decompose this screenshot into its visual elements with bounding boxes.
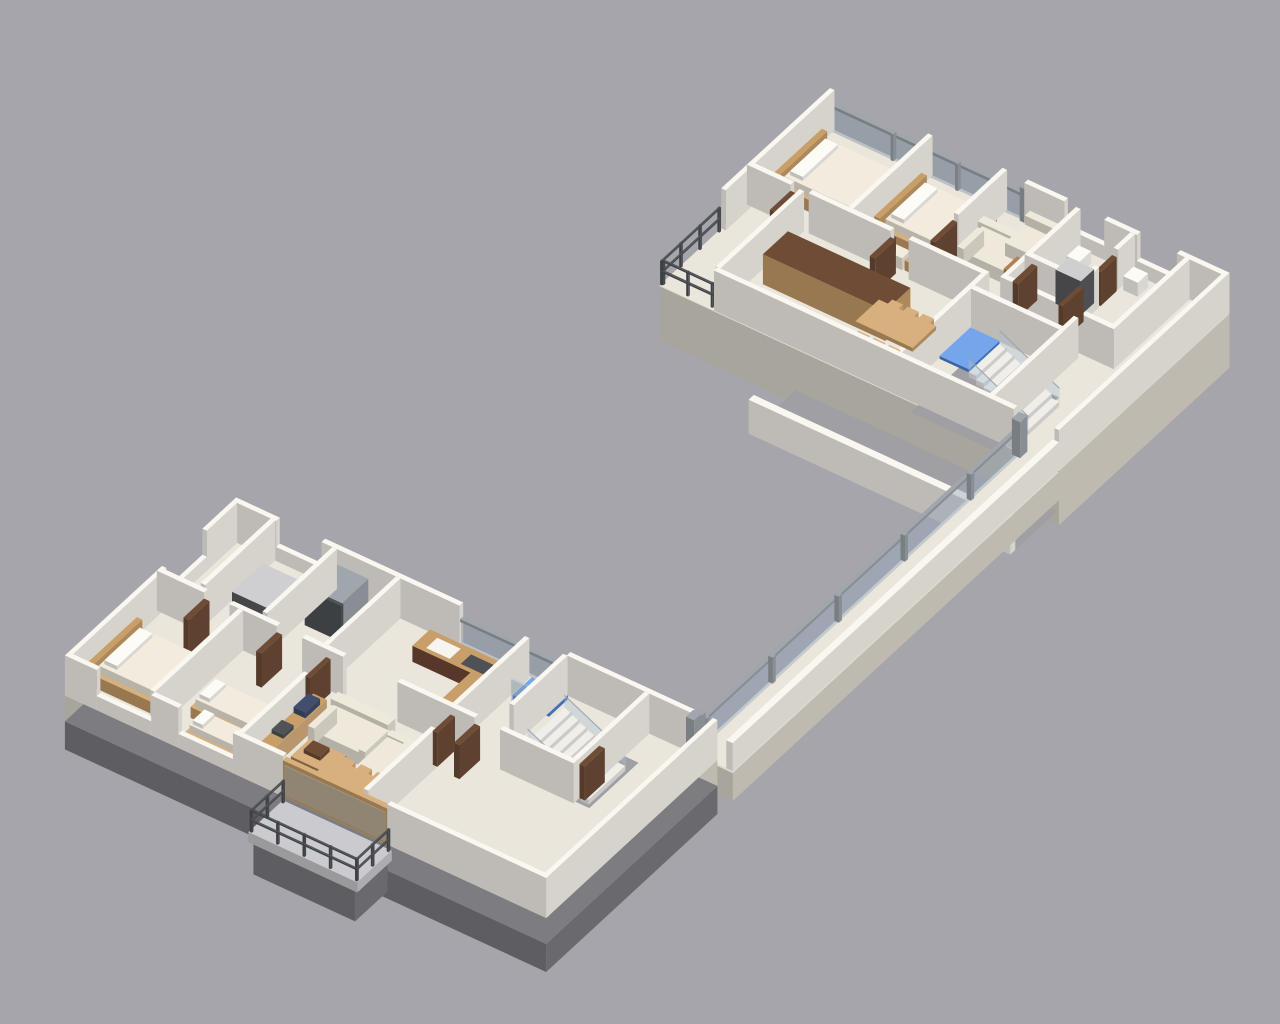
render-viewport [0,0,1280,1024]
corridor-post-3 [834,592,842,623]
floor-plan-3d-view [0,0,1280,1024]
upper-wing-ne-post-3 [955,160,961,191]
corridor-post-2 [901,531,909,562]
corridor-column-start [1012,412,1028,459]
upper-wing-ne-post-2 [891,130,897,161]
corridor-post-1 [967,470,975,501]
corridor-post-4 [768,653,776,684]
